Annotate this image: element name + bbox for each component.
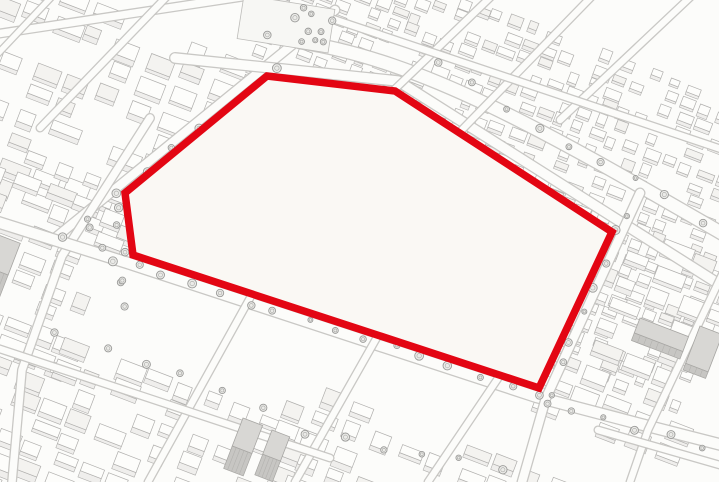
screenshot-root — [0, 0, 719, 482]
aerial-sketch-map — [0, 0, 719, 482]
